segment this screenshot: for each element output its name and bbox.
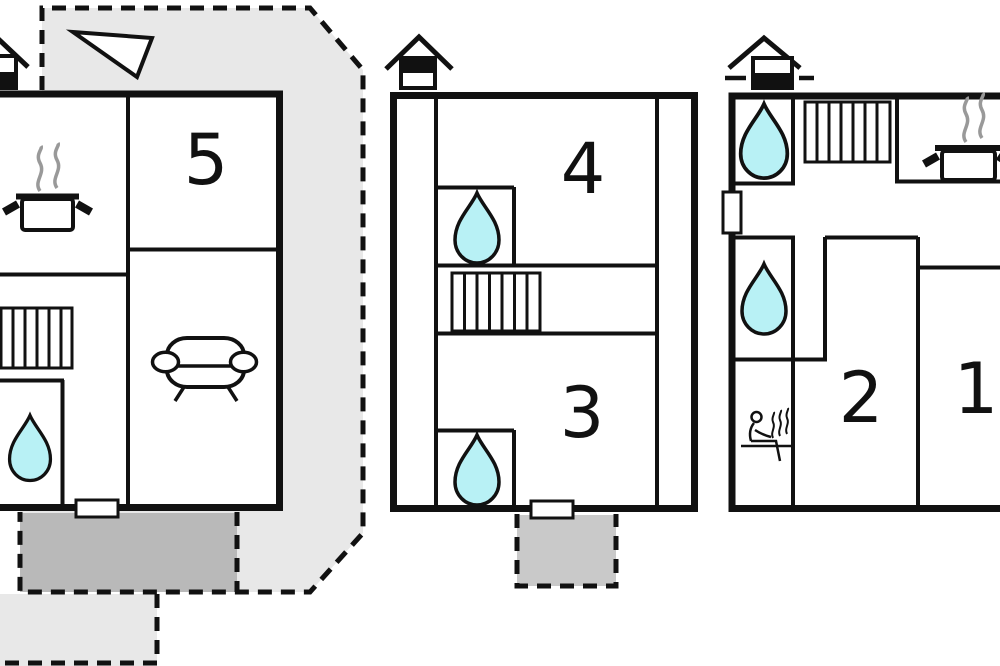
path-area-bottom-left [0,594,157,666]
floor-plan-drawing [0,0,1000,666]
room-label-2: 2 [839,363,884,433]
chimney-icon [725,38,814,88]
outer-walls [394,96,695,509]
building-left [0,32,280,517]
floor-plan: 5 4 3 2 1 [0,0,1000,666]
chimney-icon [386,37,452,88]
door [76,500,118,517]
door [723,192,741,233]
room-label-1: 1 [954,354,999,424]
building-middle [386,37,695,518]
patio-middle [517,515,616,586]
chimney-icon [0,34,28,88]
door [531,501,573,518]
room-label-4: 4 [561,134,606,204]
room-label-3: 3 [560,378,605,448]
dark-patio-left [20,513,237,592]
room-label-5: 5 [184,125,229,195]
stairs-icon [805,102,890,162]
stairs-icon [0,308,72,368]
stairs-icon [452,273,540,331]
